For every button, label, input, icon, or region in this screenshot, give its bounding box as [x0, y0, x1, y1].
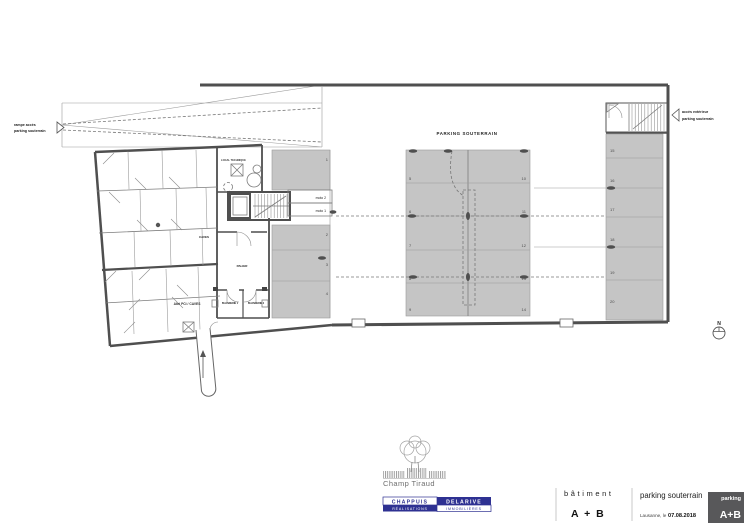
- north-compass: N: [713, 321, 725, 339]
- parking-badge: parking A+B: [708, 492, 744, 523]
- champ-tiraud-logo: Champ Tiraud: [383, 436, 446, 488]
- drawing-date: 07.08.2018: [668, 513, 696, 519]
- title-block: Champ Tiraud CHAPPUIS DELARIVE RÉALISATI…: [383, 436, 744, 523]
- svg-text:rampe accès: rampe accès: [14, 123, 36, 127]
- room-label: CAVES: [199, 235, 209, 239]
- place-date-label: Lausanne, le: [640, 513, 667, 518]
- cave-partitions: [97, 150, 220, 334]
- company-name-right: DELARIVE: [446, 499, 482, 505]
- drawing-sheet: N PARKING SOUTERRAIN rampe accès parking…: [0, 0, 750, 531]
- svg-text:parking souterrain: parking souterrain: [14, 129, 46, 133]
- exterior-corridor: [183, 322, 218, 396]
- cave-door-swings: [103, 153, 188, 333]
- company-sub-left: RÉALISATIONS: [392, 506, 428, 511]
- plan-title: PARKING SOUTERRAIN: [437, 131, 498, 136]
- svg-text:parking souterrain: parking souterrain: [682, 117, 714, 121]
- room-label: LOCAL TECHNIQUE: [221, 158, 246, 162]
- palier-room: [212, 232, 268, 307]
- stall-number: 15: [610, 148, 615, 153]
- drawing-title-section: parking souterrain Lausanne, le 07.08.20…: [632, 488, 702, 521]
- project-logo-name: Champ Tiraud: [383, 479, 435, 488]
- floor-plan-svg: N PARKING SOUTERRAIN rampe accès parking…: [0, 0, 750, 531]
- stall-number: 18: [610, 237, 615, 242]
- svg-text:accès extérieur: accès extérieur: [682, 110, 709, 114]
- skyline-icon: [383, 468, 446, 479]
- stall-number: 20: [610, 299, 615, 304]
- room-label: BUANDERIE 2: [248, 302, 265, 305]
- stall-number: 16: [610, 178, 615, 183]
- building-value: A + B: [571, 508, 605, 520]
- ramp-arrow-icon: [57, 122, 64, 133]
- north-label: N: [717, 321, 721, 327]
- access-ramp: [57, 85, 322, 147]
- company-logo: CHAPPUIS DELARIVE RÉALISATIONS IMMOBILIÈ…: [383, 497, 491, 512]
- company-name-left: CHAPPUIS: [392, 499, 428, 505]
- badge-main-label: A+B: [720, 509, 742, 521]
- exterior-stair: [606, 103, 667, 132]
- moto-stall-label: moto 1: [316, 209, 326, 213]
- outer-walls: [95, 85, 668, 346]
- moto-stall-label: moto 2: [316, 196, 326, 200]
- room-label: BUANDERIE 1: [222, 302, 239, 305]
- parking-stall-fills: [272, 134, 663, 320]
- room-label: PALIER: [237, 264, 249, 268]
- stair-elevator-core: [228, 192, 290, 220]
- stall-number: 14: [522, 307, 527, 312]
- local-technique-room: [224, 164, 262, 192]
- company-sub-right: IMMOBILIÈRES: [446, 506, 482, 511]
- stall-number: 10: [522, 176, 527, 181]
- ramp-annotation: rampe accès parking souterrain: [14, 123, 46, 133]
- stall-number: 13: [522, 276, 527, 281]
- stair-steps: [253, 194, 289, 218]
- stall-number: 19: [610, 270, 615, 275]
- left-arrow-icon: [672, 109, 679, 121]
- building-section: bâtiment A + B: [556, 488, 614, 521]
- building-label: bâtiment: [564, 489, 614, 498]
- tree-icon: [400, 436, 430, 472]
- stall-number: 17: [610, 207, 615, 212]
- exterior-access-annotation: accès extérieur parking souterrain: [672, 109, 714, 121]
- badge-top-label: parking: [721, 496, 741, 502]
- column-dot: [156, 223, 160, 227]
- room-label: Abri PCi / CAVES: [174, 302, 202, 306]
- stall-number: 12: [522, 243, 527, 248]
- drawing-title: parking souterrain: [640, 491, 702, 500]
